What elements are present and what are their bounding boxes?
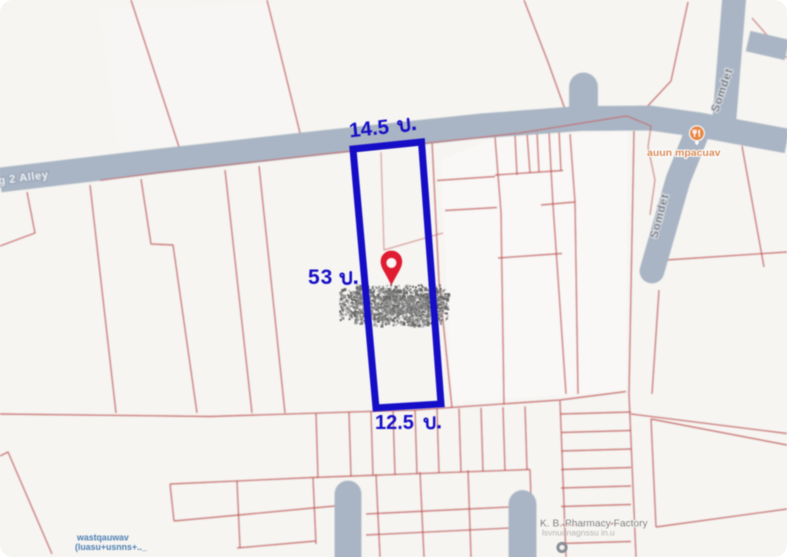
svg-text:wastqauwav: wastqauwav xyxy=(76,533,129,543)
svg-text:lsvnuunagnssu in.u: lsvnuunagnssu in.u xyxy=(542,528,615,538)
svg-text:53: 53 xyxy=(308,266,333,289)
svg-text:auun mpacuav: auun mpacuav xyxy=(647,147,721,159)
svg-text:12.5: 12.5 xyxy=(375,412,414,434)
svg-text:14.5: 14.5 xyxy=(348,115,390,142)
svg-text:(luasu+usnns+.._: (luasu+usnns+.._ xyxy=(75,542,147,552)
